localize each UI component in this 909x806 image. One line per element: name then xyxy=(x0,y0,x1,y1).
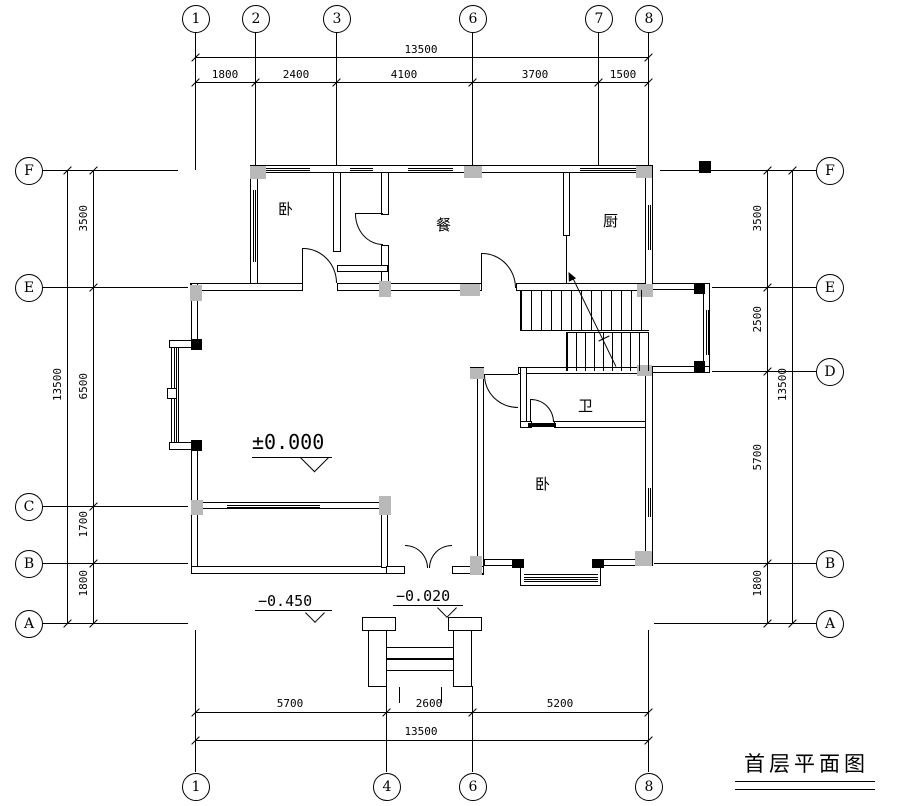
grid-line xyxy=(648,31,649,165)
dim-line xyxy=(195,82,649,83)
column-black xyxy=(191,339,202,350)
dim-label-total-left: 13500 xyxy=(51,368,64,401)
grid-line xyxy=(40,623,188,624)
dim-line xyxy=(195,57,649,58)
dim-label: 1800 xyxy=(751,570,764,597)
axis-bubble-right-B: B xyxy=(816,550,844,578)
dim-label-total-top: 13500 xyxy=(391,43,451,56)
column-black xyxy=(191,440,202,451)
axis-bubble-left-E: E xyxy=(15,274,43,302)
axis-bubble-left-B: B xyxy=(15,550,43,578)
dim-label: 2500 xyxy=(751,306,764,333)
grid-line xyxy=(195,630,196,772)
dim-label: 1700 xyxy=(77,511,90,538)
column xyxy=(250,166,266,179)
column-black xyxy=(592,559,604,568)
dim-label: 5200 xyxy=(530,697,590,710)
axis-bubble-top-3: 3 xyxy=(323,5,351,33)
door-arc-bathroom xyxy=(531,399,554,422)
wall-terrace-west xyxy=(191,508,198,568)
column xyxy=(636,166,652,178)
wall-bedroom-se-east xyxy=(645,367,653,566)
grid-line xyxy=(336,31,337,165)
dim-label: 3500 xyxy=(751,205,764,232)
wall-bath-west xyxy=(520,367,527,427)
window-stair-bay-east xyxy=(703,310,710,355)
dim-label: 1800 xyxy=(195,68,255,81)
dim-line xyxy=(195,712,649,713)
column xyxy=(191,500,203,515)
bay-window-west-cap xyxy=(169,340,192,348)
dim-label: 2600 xyxy=(399,697,459,710)
door-arc-dining xyxy=(482,253,516,288)
axis-bubble-left-C: C xyxy=(15,493,43,521)
axis-bubble-top-6: 6 xyxy=(459,5,487,33)
dim-line xyxy=(93,170,94,624)
wall-closet-south xyxy=(337,265,388,272)
door-arc-entry-right xyxy=(429,545,452,568)
bay-window-west-cap xyxy=(169,442,192,450)
grid-line xyxy=(195,31,196,170)
porch-walk-edge xyxy=(441,687,442,703)
dim-label: 3700 xyxy=(505,68,565,81)
dim-label: 2400 xyxy=(266,68,326,81)
dim-line xyxy=(767,170,768,624)
window-living-south xyxy=(227,502,320,509)
column xyxy=(470,556,482,575)
grid-line xyxy=(40,170,178,171)
column-black xyxy=(694,283,705,294)
porch-column-shaft xyxy=(453,630,472,687)
door-arc-closet xyxy=(355,214,383,245)
axis-bubble-left-A: A xyxy=(15,610,43,638)
wall-bath-south xyxy=(554,421,653,428)
door-arc-entry-left xyxy=(405,545,428,568)
wall-terrace-south xyxy=(191,566,390,574)
grid-line xyxy=(648,630,649,772)
dim-label: 4100 xyxy=(374,68,434,81)
column xyxy=(379,281,391,297)
grid-line xyxy=(40,287,188,288)
grid-line xyxy=(472,31,473,165)
grid-line xyxy=(472,686,473,772)
porch-step xyxy=(386,659,454,671)
porch-column-cap xyxy=(448,617,482,631)
axis-bubble-bottom-4: 4 xyxy=(373,773,401,801)
grid-line xyxy=(40,563,188,564)
dim-line xyxy=(67,170,68,624)
dim-label: 6500 xyxy=(77,373,90,400)
column-black xyxy=(699,161,711,173)
door-arc-bedroom-nw xyxy=(303,248,337,283)
dim-label: 5700 xyxy=(751,444,764,471)
grid-line xyxy=(386,686,387,772)
plan-title-underline xyxy=(735,789,875,790)
column-black xyxy=(512,559,524,568)
wall-kitchen-west xyxy=(563,172,570,236)
wall-closet-east-upper xyxy=(381,172,389,215)
wall-bedroom-nw-east xyxy=(333,172,341,252)
room-label-bathroom: 卫 xyxy=(578,395,593,416)
column xyxy=(460,284,480,296)
grid-line xyxy=(598,31,599,165)
wall-living-west-lower xyxy=(191,445,198,508)
axis-bubble-right-A: A xyxy=(816,610,844,638)
dim-label: 3500 xyxy=(77,205,90,232)
wall-entry-south-left xyxy=(386,566,405,574)
stairs-upper-flight xyxy=(520,290,649,331)
level-terrace: −0.450 xyxy=(258,592,312,610)
axis-bubble-left-F: F xyxy=(15,157,43,185)
axis-bubble-right-E: E xyxy=(816,274,844,302)
bay-window-south-bottom xyxy=(520,585,601,586)
porch-column-shaft xyxy=(368,630,387,687)
porch-walk-edge xyxy=(399,687,400,703)
column xyxy=(635,551,652,566)
wall-terrace-east xyxy=(381,510,388,568)
door-arc-bedroom-se xyxy=(484,375,518,408)
axis-bubble-top-8: 8 xyxy=(635,5,663,33)
dim-line xyxy=(792,170,793,624)
window-kitchen-east xyxy=(645,205,653,250)
window-bedroom-nw-north xyxy=(262,165,310,173)
wall-bedroom-se-west xyxy=(477,367,484,575)
grid-line xyxy=(40,506,188,507)
room-label-bedroom-se: 卧 xyxy=(535,473,550,494)
grid-line xyxy=(712,287,816,288)
grid-line xyxy=(712,371,816,372)
window-kitchen-north xyxy=(580,165,637,173)
dim-label: 1800 xyxy=(77,570,90,597)
plan-title-underline xyxy=(735,781,875,782)
axis-bubble-top-7: 7 xyxy=(585,5,613,33)
dim-label: 5700 xyxy=(260,697,320,710)
dim-line xyxy=(195,740,649,741)
wall-axis-E xyxy=(190,283,303,291)
axis-bubble-bottom-1: 1 xyxy=(182,773,210,801)
column xyxy=(464,166,482,178)
door-threshold-bathroom xyxy=(528,423,556,427)
dim-label-total-right: 13500 xyxy=(776,368,789,401)
axis-bubble-top-1: 1 xyxy=(182,5,210,33)
window-bedroom-nw-west xyxy=(250,190,258,262)
dim-label: 1500 xyxy=(593,68,653,81)
floor-plan-canvas: 13500 1800 2400 4100 3700 1500 5700 2600… xyxy=(0,0,909,806)
room-label-kitchen: 厨 xyxy=(603,210,618,231)
bay-window-south xyxy=(524,574,598,582)
bay-window-west-mullion xyxy=(167,388,177,399)
plan-title: 首层平面图 xyxy=(744,748,869,778)
room-label-bedroom-nw: 卧 xyxy=(278,198,293,219)
porch-column-cap xyxy=(362,617,396,631)
axis-bubble-bottom-8: 8 xyxy=(635,773,663,801)
window-dining-north xyxy=(408,165,453,173)
column xyxy=(470,368,484,379)
room-label-dining: 餐 xyxy=(436,214,451,235)
column-black xyxy=(694,361,705,372)
grid-line xyxy=(255,31,256,165)
axis-bubble-bottom-6: 6 xyxy=(459,773,487,801)
column xyxy=(379,496,391,515)
axis-bubble-top-2: 2 xyxy=(242,5,270,33)
dim-label-total-bottom: 13500 xyxy=(391,725,451,738)
window-bedroom-se-east xyxy=(645,488,653,517)
axis-bubble-right-D: D xyxy=(816,358,844,386)
column xyxy=(190,285,202,301)
porch-step xyxy=(386,647,454,659)
window-closet-north xyxy=(350,165,373,173)
axis-bubble-right-F: F xyxy=(816,157,844,185)
